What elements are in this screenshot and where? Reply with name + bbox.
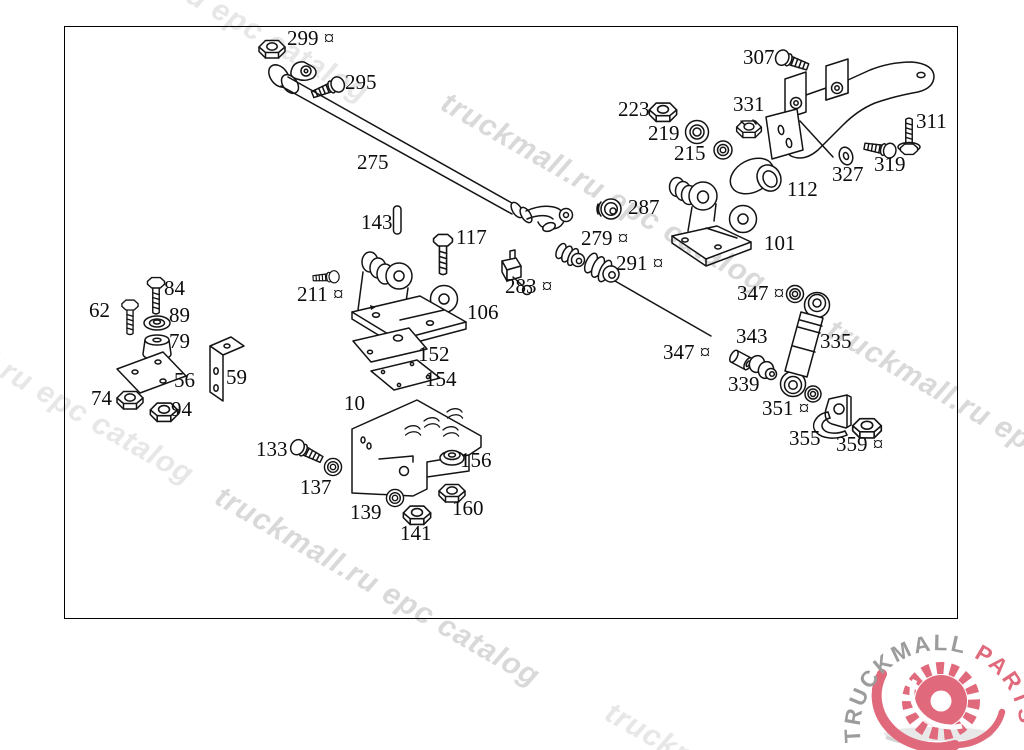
- logo-swirl-icon: [877, 668, 1002, 747]
- logo-suffix-text: PARTS: [971, 640, 1024, 727]
- brand-logo: TRUCKMALL PARTS: [0, 0, 1024, 750]
- parts-diagram-page: truckmall.ru epc catalogtruckmall.ru epc…: [0, 0, 1024, 750]
